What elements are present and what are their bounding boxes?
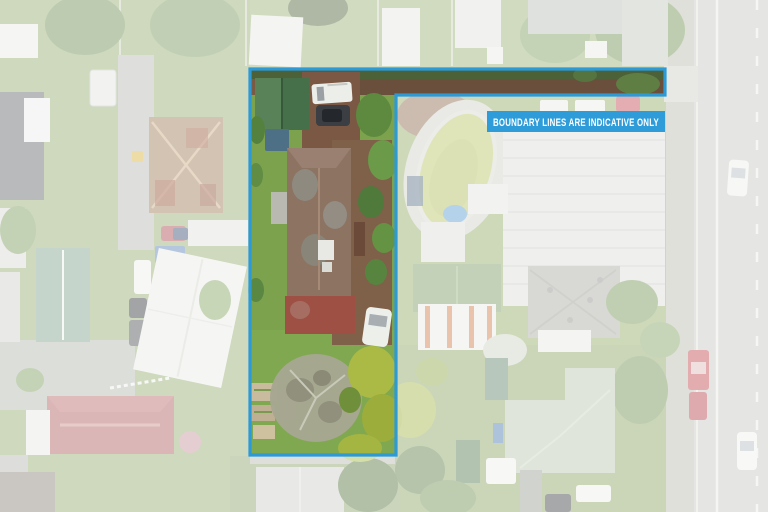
- tree: [356, 93, 392, 137]
- skylight: [318, 240, 334, 260]
- skylight: [322, 262, 332, 272]
- aerial-photo: BOUNDARY LINES ARE INDICATIVE ONLY: [0, 0, 768, 512]
- white-car: [361, 306, 392, 347]
- main-house-roof: [285, 148, 355, 334]
- bush: [339, 387, 361, 413]
- boundary-disclaimer-banner: BOUNDARY LINES ARE INDICATIVE ONLY: [487, 111, 665, 132]
- carport: [354, 222, 365, 256]
- tree: [358, 186, 384, 218]
- subject-property: [248, 72, 402, 462]
- boundary-disclaimer-text: BOUNDARY LINES ARE INDICATIVE ONLY: [493, 117, 659, 129]
- white-van: [311, 82, 352, 105]
- tree: [368, 140, 398, 180]
- tree: [365, 259, 387, 285]
- tree: [372, 223, 396, 253]
- hedge: [616, 73, 660, 95]
- blue-trailer: [265, 129, 289, 151]
- black-car: [316, 105, 350, 126]
- aerial-photo-canvas: BOUNDARY LINES ARE INDICATIVE ONLY: [0, 0, 768, 512]
